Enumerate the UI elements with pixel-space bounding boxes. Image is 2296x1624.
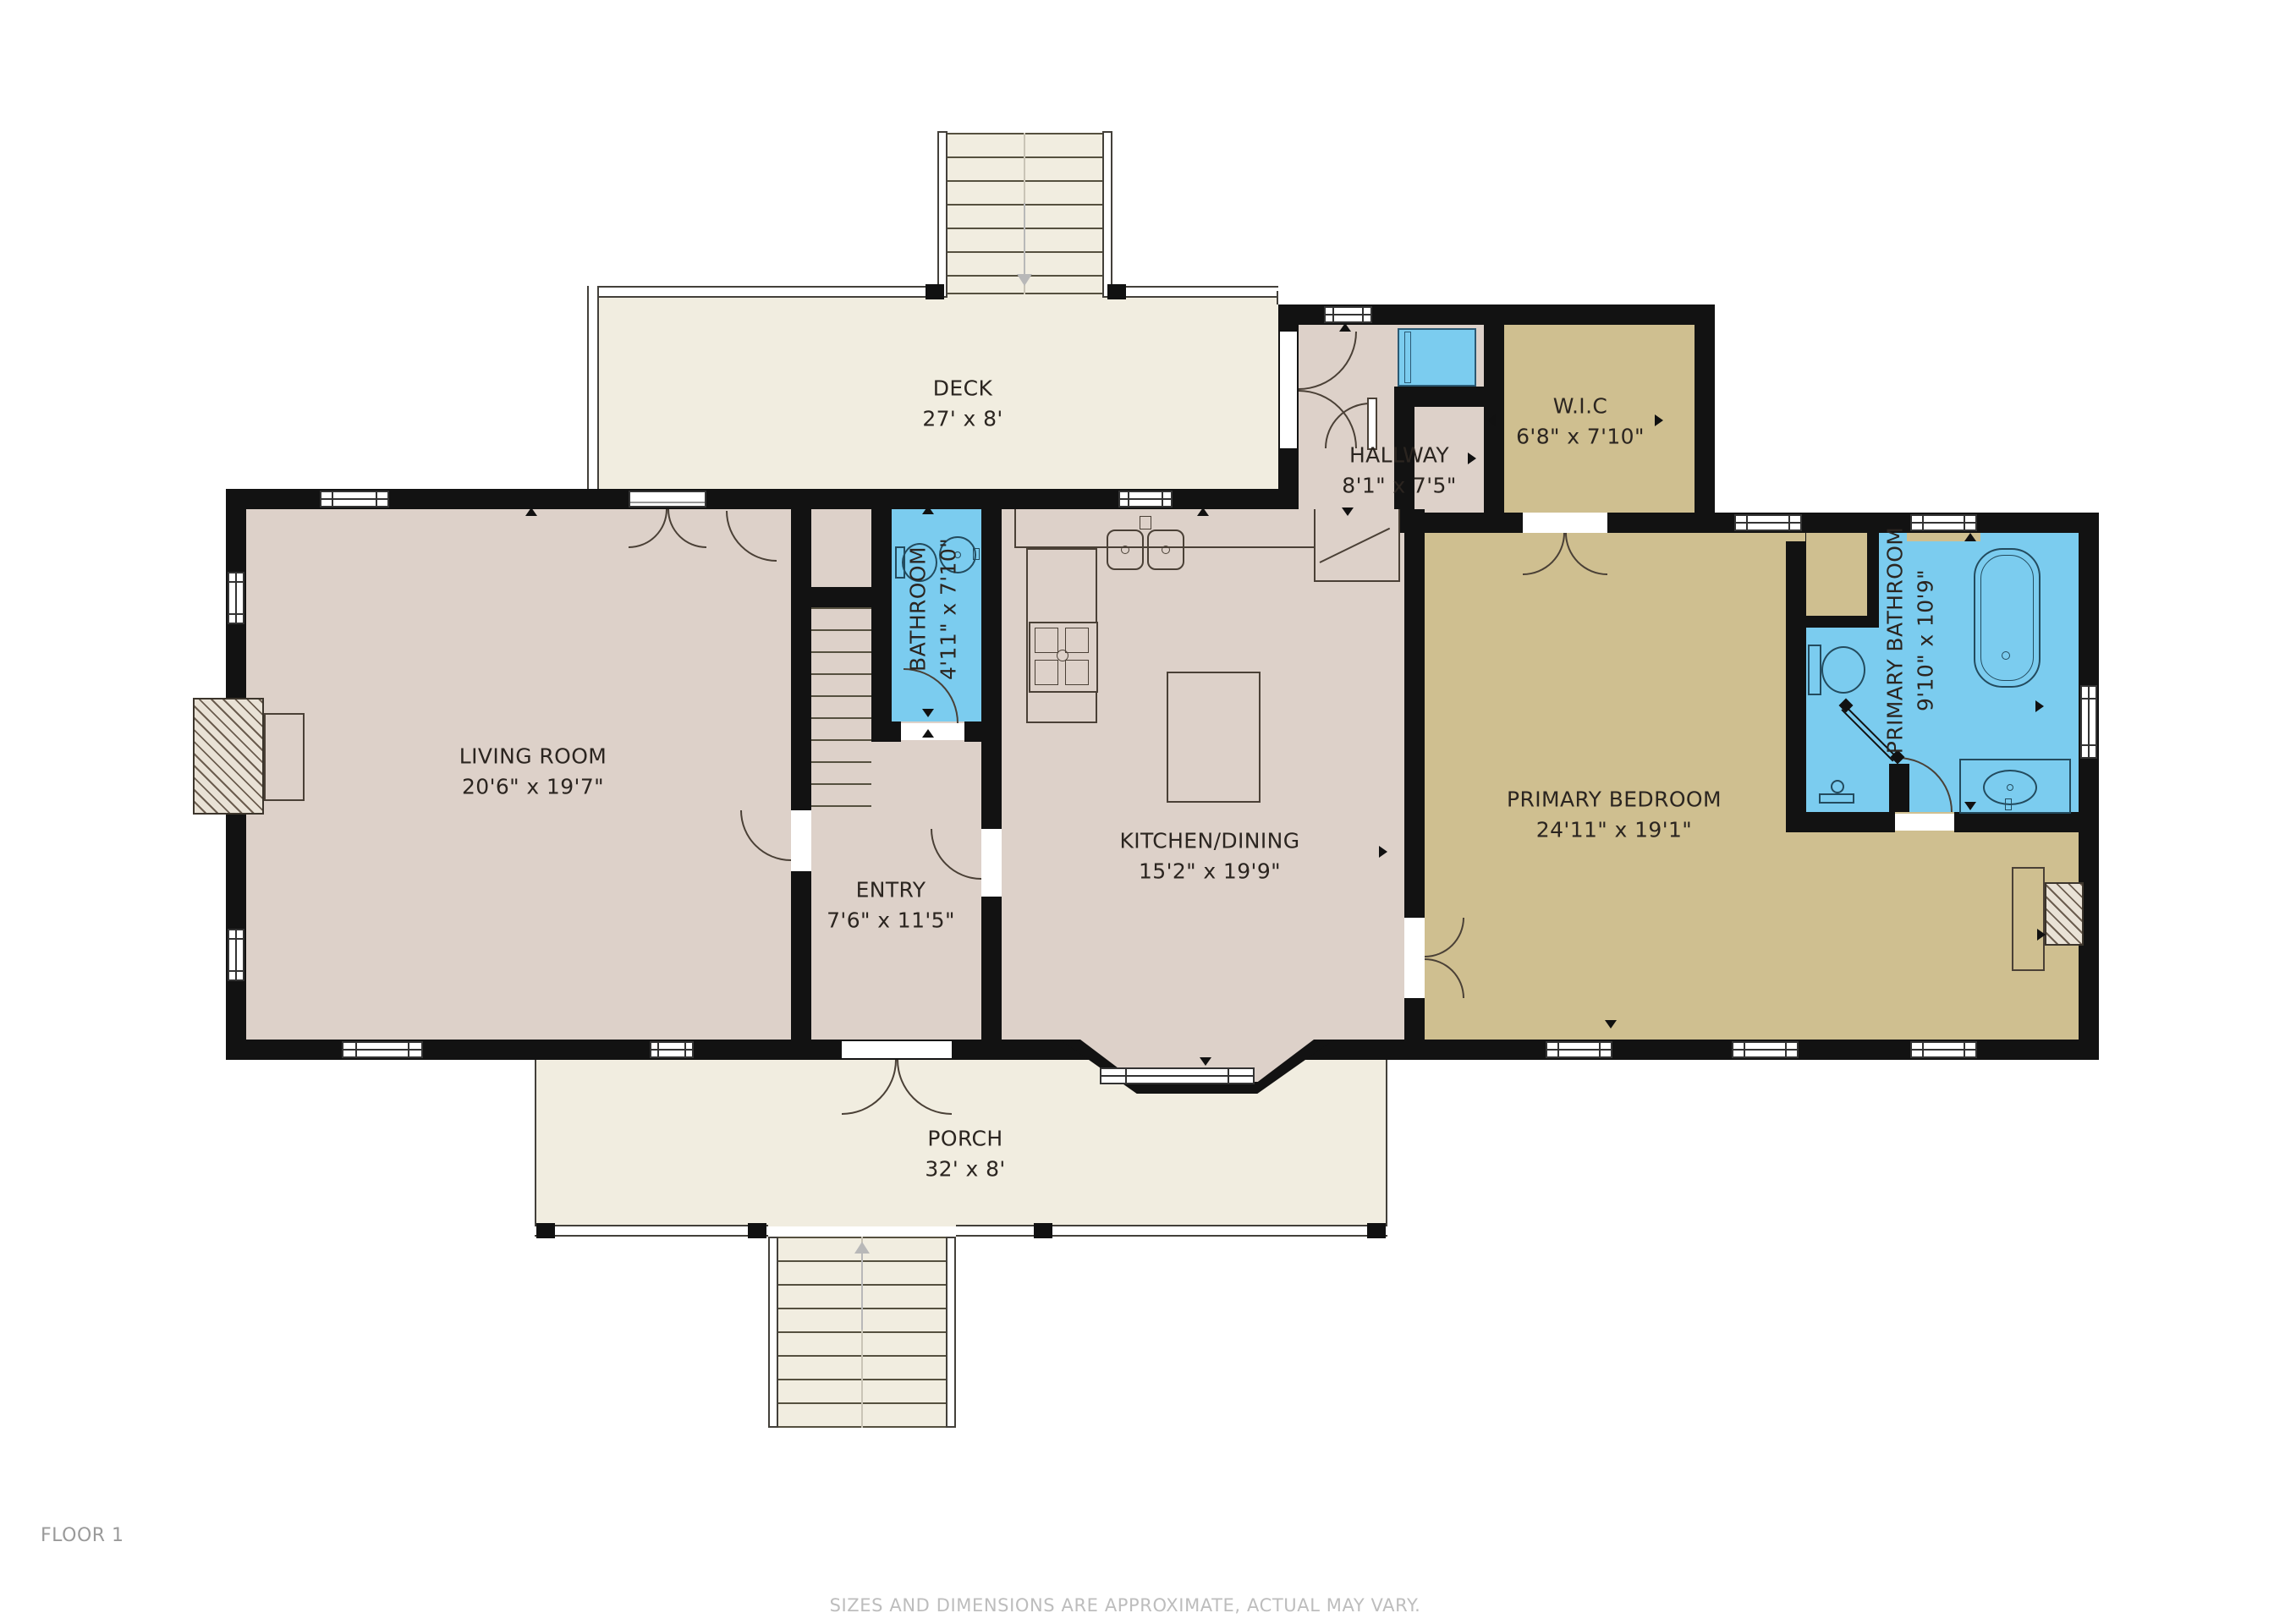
room-name: PRIMARY BATHROOM <box>1881 527 1911 754</box>
arrow-icon <box>922 729 934 738</box>
bedroom-door-threshold <box>1406 918 1423 998</box>
wall <box>871 721 901 742</box>
arrow-icon <box>1605 1020 1617 1029</box>
arrow-icon <box>922 506 934 514</box>
room-label-primary-bedroom: PRIMARY BEDROOM 24'11" x 19'1" <box>1507 785 1722 845</box>
room-dims: 32' x 8' <box>925 1154 1005 1184</box>
kitchen-island <box>1167 672 1261 803</box>
room-name: PRIMARY BEDROOM <box>1507 785 1722 815</box>
wall <box>871 509 892 742</box>
porch-railing-left <box>535 1225 768 1237</box>
wall <box>1404 509 1425 918</box>
wall <box>1806 616 1879 628</box>
deck-post <box>926 284 944 299</box>
wall <box>2079 513 2099 1060</box>
wall <box>1867 532 1879 628</box>
sink-drain <box>1121 546 1129 554</box>
wall <box>1786 532 1806 832</box>
deck-stairs-arrow-stem <box>1024 203 1025 274</box>
deck-stairs-rail-right <box>1102 131 1112 298</box>
arrow-icon <box>2037 929 2046 941</box>
wic-door-threshold <box>1523 514 1607 531</box>
wall <box>791 509 811 810</box>
washer-door-line <box>1404 332 1411 383</box>
deck-post <box>1107 284 1126 299</box>
fireplace <box>2045 882 2084 946</box>
window <box>228 929 244 981</box>
wall <box>981 509 1002 829</box>
window-sill <box>1542 1031 1616 1040</box>
wall <box>1695 325 1715 533</box>
room-dims: 27' x 8' <box>922 403 1002 434</box>
deck-railing-top-left <box>587 286 937 298</box>
room-dims: 8'1" x 7'5" <box>1342 470 1456 501</box>
deck-railing-left <box>587 286 599 509</box>
tub-drain <box>2002 651 2010 660</box>
porch-edge-right <box>1386 1060 1387 1237</box>
porch-railing-right <box>956 1225 1387 1237</box>
room-label-living-room: LIVING ROOM 20'6" x 19'7" <box>459 742 607 802</box>
stove-center <box>1057 650 1068 661</box>
window <box>2080 685 2097 759</box>
primary-bathroom-notch <box>1806 532 1867 616</box>
room-dims: 4'11" x 7'10" <box>933 538 964 680</box>
wall <box>791 587 871 607</box>
room-dims: 20'6" x 19'7" <box>459 771 607 802</box>
vanity-drain <box>2007 784 2013 791</box>
wall <box>981 897 1002 1040</box>
room-label-kitchen-dining: KITCHEN/DINING 15'2" x 19'9" <box>1119 826 1299 886</box>
room-name: LIVING ROOM <box>459 742 607 772</box>
room-name: HALLWAY <box>1342 441 1456 471</box>
window <box>1546 1041 1612 1058</box>
porch-post <box>748 1223 766 1238</box>
disclaimer-text: SIZES AND DIMENSIONS ARE APPROXIMATE, AC… <box>830 1595 1421 1616</box>
fireplace-hearth <box>264 713 305 801</box>
pedestal-sink-bowl <box>1831 780 1844 793</box>
fireplace-hearth <box>2012 867 2045 971</box>
arrow-icon <box>1964 802 1976 810</box>
interior-stairs <box>811 607 871 809</box>
room-label-wic: W.I.C 6'8" x 7'10" <box>1516 392 1645 452</box>
arrow-icon <box>1197 507 1209 516</box>
stove-burner <box>1035 628 1058 653</box>
arrow-icon <box>1200 1057 1211 1066</box>
porch-stairs-up-arrow-icon <box>854 1242 870 1254</box>
room-label-primary-bathroom: PRIMARY BATHROOM 9'10" x 10'9" <box>1881 527 1941 754</box>
primary-bathroom-door-threshold <box>1895 814 1954 831</box>
front-door-threshold <box>842 1041 952 1058</box>
porch-stairs-rail-right <box>946 1237 956 1428</box>
fireplace <box>193 698 264 815</box>
window <box>1910 1041 1977 1058</box>
porch-post <box>536 1223 555 1238</box>
arrow-icon <box>1655 414 1663 426</box>
porch-stairs-rail-left <box>768 1237 778 1428</box>
bathroom-faucet <box>973 548 980 560</box>
room-name: BATHROOM <box>904 538 934 680</box>
wall <box>791 871 811 1040</box>
pedestal-sink-bar <box>1819 793 1854 804</box>
stove-burner <box>1035 660 1058 685</box>
bathtub-inner <box>1980 555 2034 681</box>
window <box>1324 306 1372 323</box>
deck-stairs-down-arrow-icon <box>1017 274 1032 286</box>
arrow-icon <box>1339 323 1351 332</box>
room-label-entry: ENTRY 7'6" x 11'5" <box>827 875 955 935</box>
window <box>228 572 244 624</box>
window <box>320 491 389 507</box>
room-name: W.I.C <box>1516 392 1645 422</box>
porch-stairs-arrow-stem <box>861 1254 863 1330</box>
room-name: ENTRY <box>827 875 955 906</box>
window-sill <box>1731 533 1805 541</box>
room-dims: 9'10" x 10'9" <box>1910 527 1941 754</box>
deck-stairs-rail-left <box>937 131 948 298</box>
wall <box>1607 513 1715 533</box>
toilet-tank <box>1808 645 1821 695</box>
hallway-deck-door-threshold <box>1280 332 1297 448</box>
sliding-door <box>629 491 706 507</box>
room-name: KITCHEN/DINING <box>1119 826 1299 857</box>
window-sill <box>1728 1031 1802 1040</box>
kitchen-faucet <box>1140 516 1151 529</box>
window <box>1732 1041 1799 1058</box>
wall <box>1786 812 1895 832</box>
kitchen-counter-corner <box>1314 509 1400 582</box>
wall <box>1484 513 1523 533</box>
arrow-icon <box>922 709 934 717</box>
sink-drain <box>1162 546 1170 554</box>
wall <box>964 721 981 742</box>
window <box>342 1041 423 1058</box>
porch-edge-left <box>535 1060 536 1237</box>
toilet-bowl <box>1821 646 1865 694</box>
porch-post <box>1034 1223 1052 1238</box>
arrow-icon <box>1964 533 1976 541</box>
room-name: DECK <box>922 374 1002 404</box>
room-label-bathroom: BATHROOM 4'11" x 7'10" <box>904 538 964 680</box>
deck-edge-right <box>1277 291 1278 304</box>
window-sill <box>1907 1031 1980 1040</box>
room-dims: 6'8" x 7'10" <box>1516 421 1645 452</box>
deck-railing-top-right <box>1112 286 1278 298</box>
vanity-faucet <box>2005 798 2012 810</box>
arrow-icon <box>1342 507 1354 516</box>
arrow-icon <box>525 507 537 516</box>
arrow-icon <box>1468 453 1476 464</box>
window <box>1734 514 1802 531</box>
room-dims: 7'6" x 11'5" <box>827 905 955 935</box>
stove-burner <box>1065 628 1089 653</box>
room-name: PORCH <box>925 1124 1005 1155</box>
bay-window <box>1100 1067 1255 1084</box>
porch-post <box>1367 1223 1386 1238</box>
arrow-icon <box>1487 414 1496 426</box>
window <box>1118 491 1173 507</box>
arrow-icon <box>1379 846 1387 858</box>
floor-plan: DECK 27' x 8' HALLWAY 8'1" x 7'5" W.I.C … <box>0 0 2296 1624</box>
room-dims: 15'2" x 19'9" <box>1119 856 1299 886</box>
room-label-porch: PORCH 32' x 8' <box>925 1124 1005 1184</box>
room-label-hallway: HALLWAY 8'1" x 7'5" <box>1342 441 1456 501</box>
stove-burner <box>1065 660 1089 685</box>
wall <box>1404 998 1425 1040</box>
window <box>650 1041 694 1058</box>
room-label-deck: DECK 27' x 8' <box>922 374 1002 434</box>
floor-label: FLOOR 1 <box>41 1525 124 1546</box>
wall <box>1954 812 2079 832</box>
wall <box>1394 387 1484 407</box>
arrow-icon <box>2035 700 2044 712</box>
room-dims: 24'11" x 19'1" <box>1507 815 1722 845</box>
